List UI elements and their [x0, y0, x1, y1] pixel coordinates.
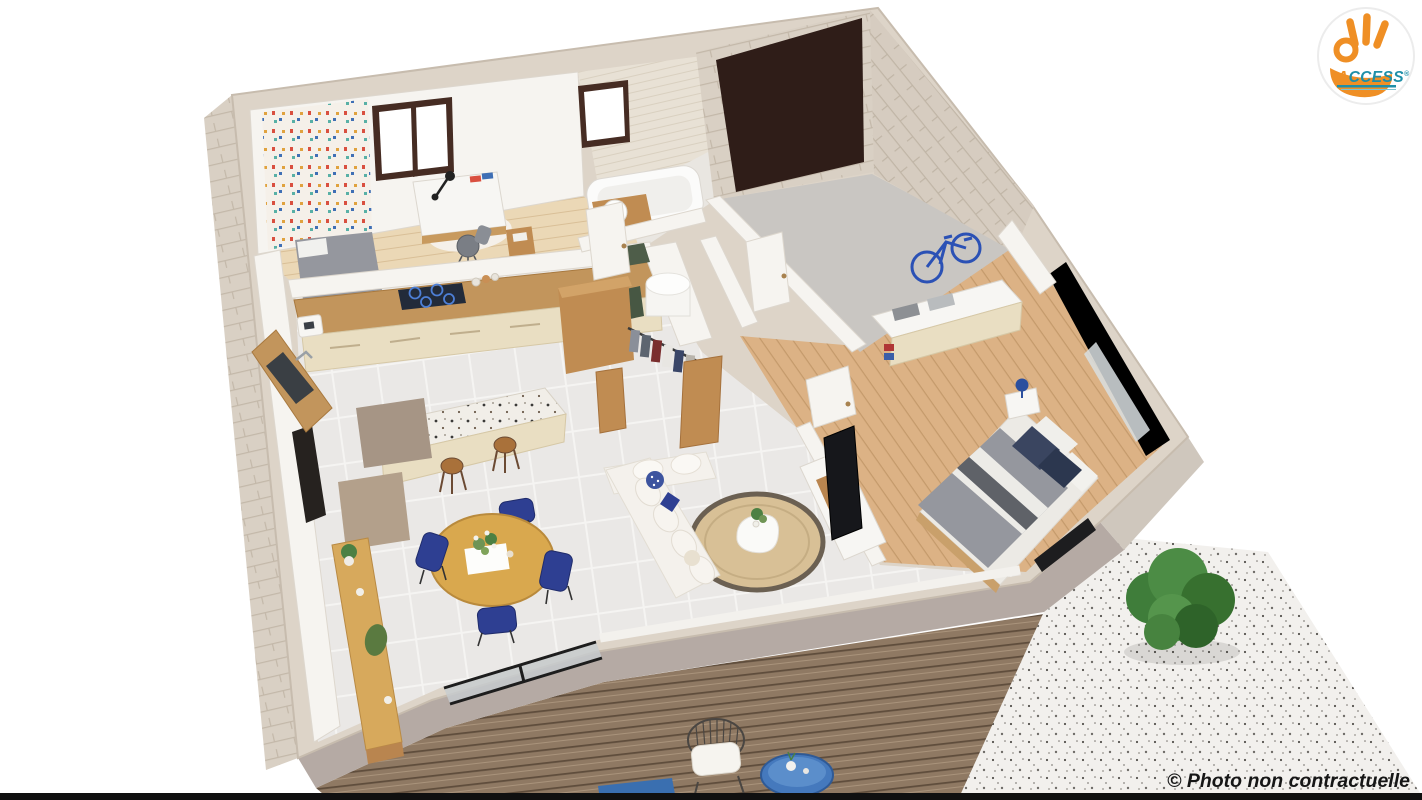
shelf-clothes	[884, 344, 894, 351]
office-window	[372, 97, 454, 181]
coffee-machine	[297, 314, 324, 337]
interior-door	[746, 232, 790, 312]
desk	[413, 171, 506, 244]
table-vase	[786, 761, 796, 771]
interior-door	[586, 202, 630, 280]
logo-underline	[1337, 85, 1396, 88]
logo-underline-thin	[1341, 89, 1396, 90]
watermark-text: © Photo non contractuelle	[1167, 770, 1410, 792]
logo-wordmark: ACCESS®	[1336, 69, 1410, 86]
bedside-lamp-icon	[1016, 379, 1029, 392]
floorplan-render: © Photo non contractuelle ACCESS®	[0, 0, 1422, 800]
wardrobe-open-door	[596, 368, 626, 433]
bathroom-window	[578, 80, 630, 148]
floorplan-svg: © Photo non contractuelle ACCESS®	[0, 0, 1422, 800]
bottom-frame-bar	[0, 793, 1422, 800]
patterned-pillow	[646, 471, 664, 489]
cream-pillow	[684, 550, 700, 566]
dining-table	[430, 514, 554, 606]
access-logo: ACCESS®	[1318, 8, 1414, 104]
wardrobe-open-door	[680, 356, 722, 448]
water-heater	[646, 273, 690, 316]
wallpaper-accent-wall	[262, 99, 372, 250]
shelf-clothes	[884, 353, 894, 360]
